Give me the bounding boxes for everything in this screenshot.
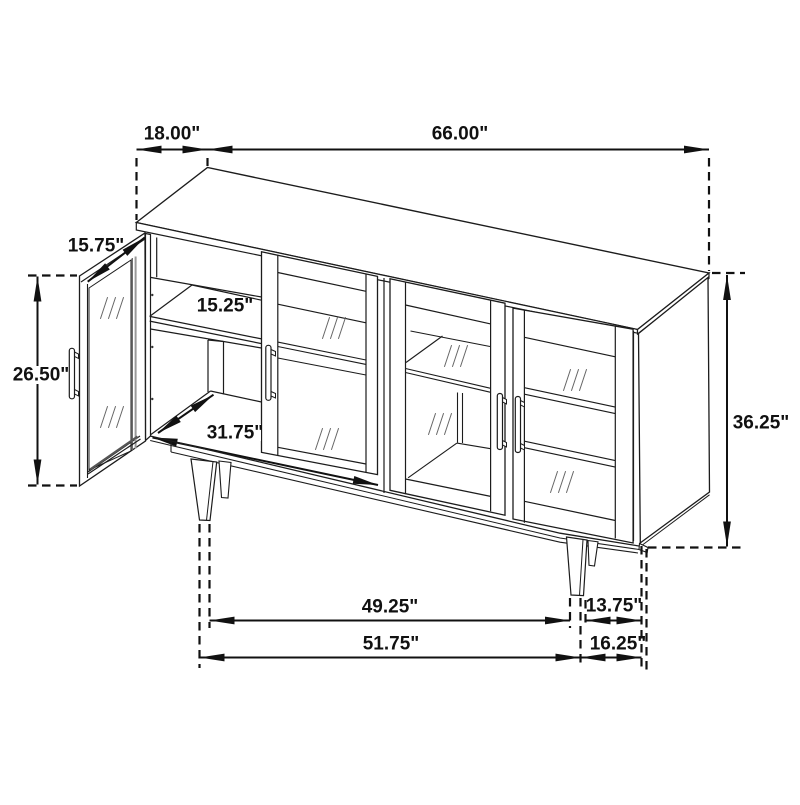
svg-text:13.75": 13.75" <box>586 596 643 617</box>
svg-text:31.75": 31.75" <box>207 423 264 444</box>
svg-text:51.75": 51.75" <box>363 634 420 655</box>
svg-text:15.75": 15.75" <box>68 236 125 257</box>
svg-text:15.25": 15.25" <box>197 296 254 317</box>
svg-text:26.50": 26.50" <box>13 365 70 386</box>
svg-text:16.25": 16.25" <box>590 634 647 655</box>
svg-text:66.00": 66.00" <box>432 124 489 145</box>
svg-text:49.25": 49.25" <box>362 597 419 618</box>
svg-text:18.00": 18.00" <box>144 124 201 145</box>
svg-text:36.25": 36.25" <box>733 413 790 434</box>
